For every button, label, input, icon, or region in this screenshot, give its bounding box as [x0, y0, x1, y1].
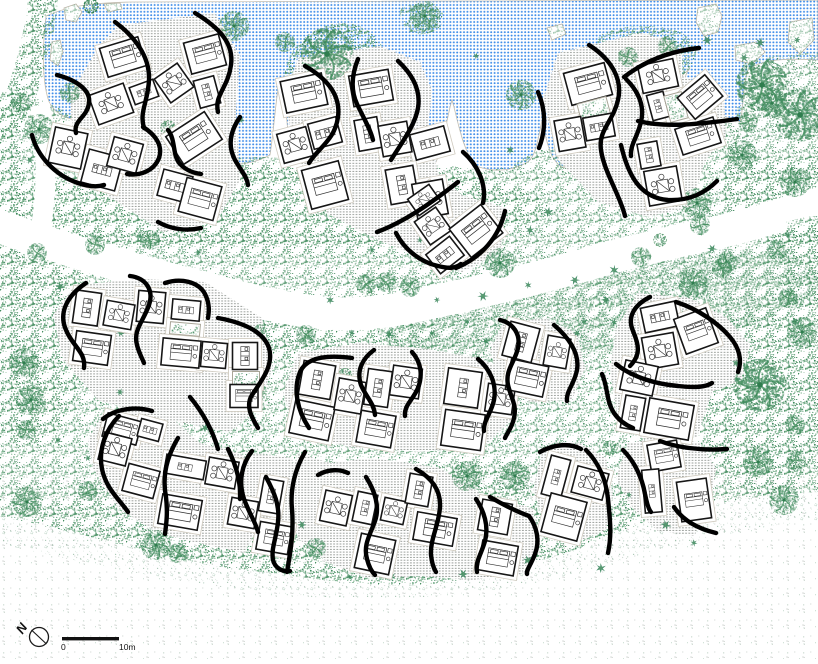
svg-text:0: 0 — [61, 642, 66, 652]
svg-text:10m: 10m — [119, 642, 136, 652]
